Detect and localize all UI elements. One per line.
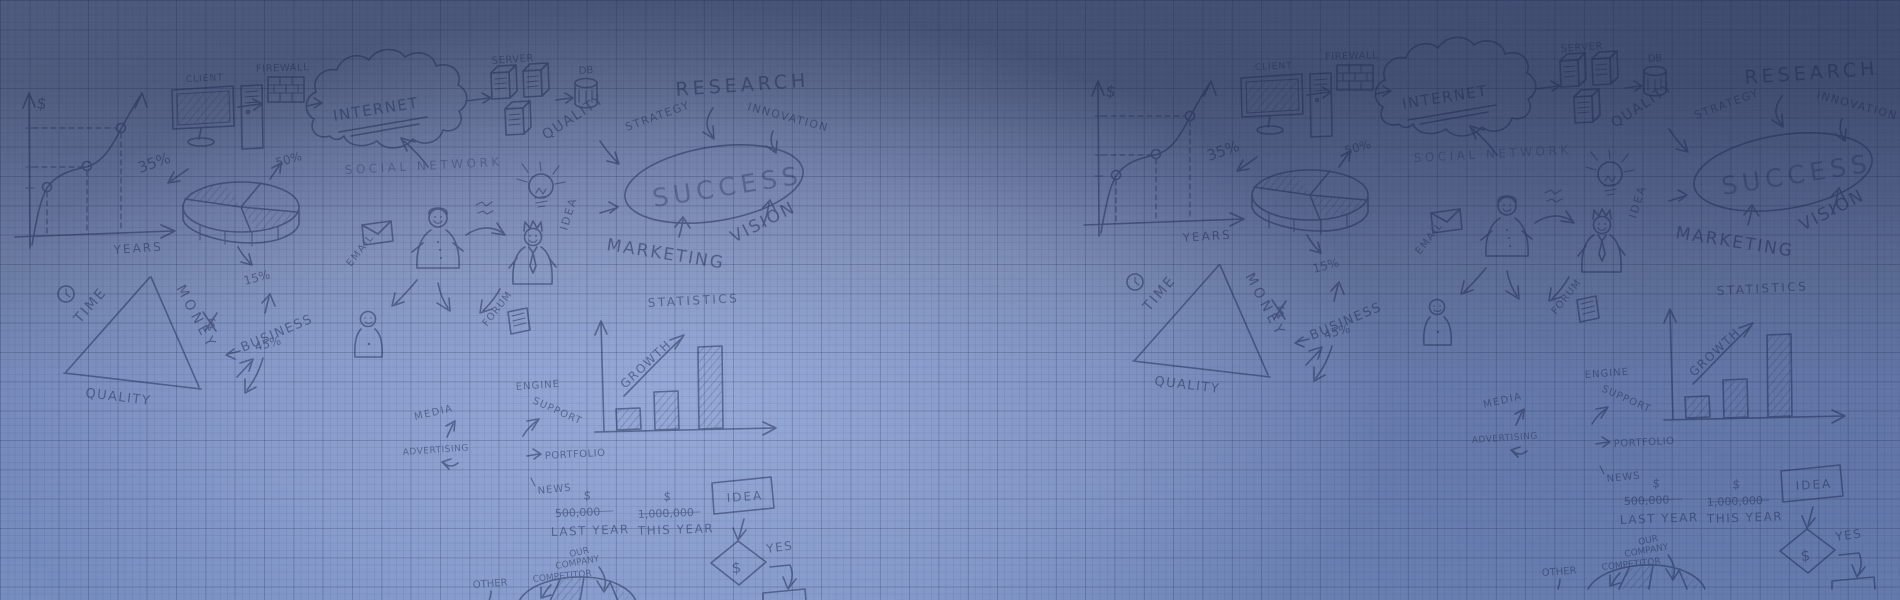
marketing-label: MARKETING: [605, 235, 726, 273]
concept-labels: QUALITY STRATEGY RESEARCH INNOVATION SUC…: [539, 70, 830, 274]
social-network-label-group: SOCIAL NETWORK 50%: [270, 149, 503, 179]
doodle-tile-repeat: [1084, 37, 1899, 589]
chart-years-label: YEARS: [112, 240, 163, 257]
last-year-label: LAST YEAR: [551, 522, 630, 539]
engine-label: ENGINE: [515, 379, 560, 393]
vision-label: VISION: [727, 198, 799, 248]
doodle-layer: $ YEARS 35% CLIENT FIREWALL: [0, 0, 1900, 600]
other-label: OTHER: [472, 578, 507, 591]
portfolio-label: PORTFOLIO: [545, 448, 606, 462]
internet-cloud-doodle: INTERNET: [306, 49, 491, 167]
quality-label: QUALITY: [539, 92, 607, 144]
flow-idea-label: IDEA: [726, 488, 763, 505]
research-label: RESEARCH: [675, 70, 810, 101]
business-label: BUSINESS: [239, 312, 316, 356]
money-growth-chart-doodle: $ YEARS 35%: [15, 93, 188, 257]
advertising-label: ADVERTISING: [403, 443, 470, 458]
pct-15-label: 15%: [242, 267, 271, 287]
idea-flowchart-doodle: IDEA $ YES: [711, 477, 806, 600]
people-doodle: [355, 208, 556, 357]
doodle-banner-background: $ YEARS 35% CLIENT FIREWALL: [0, 0, 1900, 600]
statistics-label: STATISTICS: [647, 291, 739, 310]
flow-dollar-label: $: [731, 558, 742, 577]
growth-label: GROWTH: [617, 337, 674, 391]
flow-yes-label: YES: [764, 538, 794, 556]
media-label: MEDIA: [413, 403, 454, 423]
chart-dollar-label: $: [35, 93, 48, 113]
social-network-label: SOCIAL NETWORK: [344, 155, 503, 177]
forum-doodle: FORUM: [481, 289, 530, 334]
support-label: SUPPORT: [531, 396, 584, 428]
year-comparison-doodle: $ 500,000 LAST YEAR $ 1,000,000 THIS YEA…: [472, 488, 714, 600]
firewall-label: FIREWALL: [256, 62, 310, 75]
innovation-label: INNOVATION: [746, 100, 830, 134]
last-year-dollar: $: [583, 488, 592, 503]
email-label: EMAIL: [345, 232, 377, 269]
lightbulb-idea-doodle: IDEA: [476, 162, 618, 232]
client-computer-doodle: CLIENT: [172, 73, 263, 149]
statistics-bar-chart-doodle: STATISTICS GROWTH: [595, 291, 776, 435]
doodle-tile: $ YEARS 35% CLIENT FIREWALL: [15, 49, 830, 600]
news-label: NEWS: [537, 482, 572, 496]
db-label: DB: [578, 65, 593, 77]
client-label: CLIENT: [186, 73, 224, 85]
pct-35-label: 35%: [135, 149, 172, 177]
quality-side-label: QUALITY: [85, 386, 152, 409]
crossed-dollar: $: [205, 313, 219, 333]
email-doodle: EMAIL: [345, 221, 393, 269]
channel-labels: ENGINE SUPPORT PORTFOLIO NEWS MEDIA ADVE…: [403, 379, 606, 497]
this-year-label: THIS YEAR: [637, 521, 715, 538]
firewall-doodle: FIREWALL: [256, 62, 322, 108]
idea-vertical-label: IDEA: [557, 195, 579, 232]
strategy-label: STRATEGY: [624, 98, 692, 133]
time-label: TIME: [70, 285, 110, 328]
this-year-dollar: $: [663, 489, 672, 504]
